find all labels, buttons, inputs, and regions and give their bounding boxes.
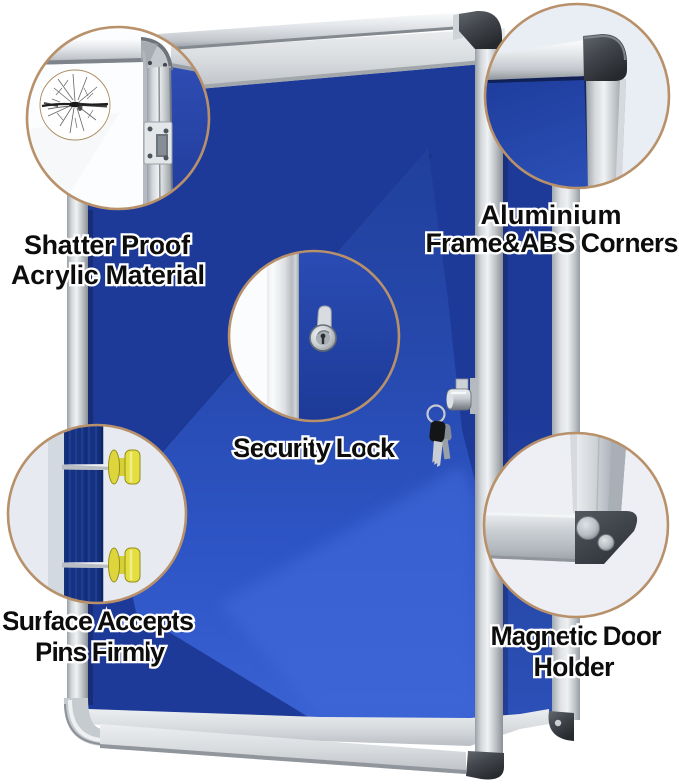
svg-text:Surface Accepts: Surface Accepts (2, 606, 194, 636)
svg-text:Security Lock: Security Lock (233, 433, 396, 463)
svg-text:Holder: Holder (534, 652, 615, 682)
svg-text:Frame&ABS Corners: Frame&ABS Corners (426, 228, 679, 258)
svg-text:Shatter Proof: Shatter Proof (24, 230, 191, 260)
svg-text:Aluminium: Aluminium (481, 200, 622, 230)
svg-text:Pins Firmly: Pins Firmly (35, 637, 165, 667)
svg-text:Acrylic Material: Acrylic Material (11, 260, 205, 290)
svg-text:Magnetic Door: Magnetic Door (491, 621, 662, 651)
